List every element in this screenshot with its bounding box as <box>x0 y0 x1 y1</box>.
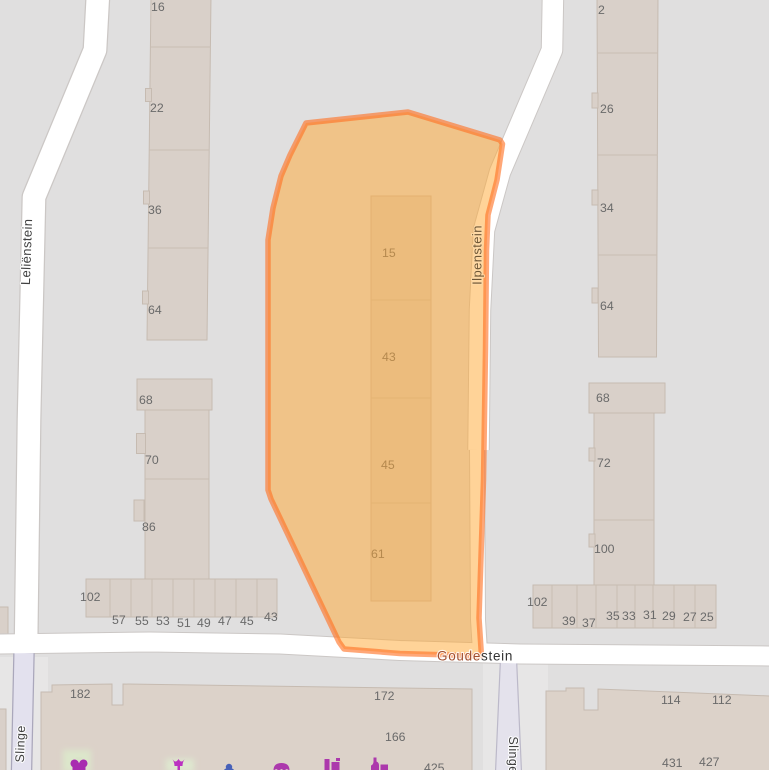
svg-text:Ilpenstein: Ilpenstein <box>470 225 485 285</box>
svg-text:43: 43 <box>264 610 278 624</box>
svg-text:86: 86 <box>142 520 156 534</box>
svg-text:182: 182 <box>70 687 91 701</box>
svg-text:57: 57 <box>112 613 126 627</box>
svg-text:49: 49 <box>197 616 211 630</box>
svg-text:37: 37 <box>582 616 596 630</box>
svg-text:26: 26 <box>600 102 614 116</box>
svg-text:51: 51 <box>177 616 191 630</box>
svg-text:427: 427 <box>699 755 720 769</box>
svg-text:431: 431 <box>662 756 683 770</box>
svg-text:102: 102 <box>527 595 548 609</box>
svg-text:425: 425 <box>424 761 445 770</box>
svg-text:34: 34 <box>600 201 614 215</box>
svg-text:166: 166 <box>385 730 406 744</box>
svg-text:68: 68 <box>596 391 610 405</box>
svg-text:25: 25 <box>700 610 714 624</box>
svg-text:Goudestein: Goudestein <box>437 649 513 664</box>
svg-text:112: 112 <box>712 693 732 707</box>
svg-text:Leliënstein: Leliënstein <box>18 218 35 285</box>
svg-text:39: 39 <box>562 614 576 628</box>
svg-text:72: 72 <box>597 456 611 470</box>
svg-text:102: 102 <box>80 590 101 604</box>
svg-text:33: 33 <box>622 609 636 623</box>
svg-text:45: 45 <box>240 614 254 628</box>
svg-text:31: 31 <box>643 608 657 622</box>
svg-text:100: 100 <box>594 542 615 556</box>
svg-text:55: 55 <box>135 614 149 628</box>
svg-text:29: 29 <box>662 609 676 623</box>
svg-text:36: 36 <box>148 203 162 217</box>
svg-text:114: 114 <box>661 693 681 707</box>
svg-text:Slinge: Slinge <box>13 725 28 763</box>
svg-text:47: 47 <box>218 614 232 628</box>
svg-text:70: 70 <box>145 453 159 467</box>
svg-text:64: 64 <box>148 303 162 317</box>
svg-text:16: 16 <box>151 0 165 14</box>
svg-text:27: 27 <box>683 610 697 624</box>
svg-text:2: 2 <box>598 3 605 17</box>
svg-text:Slinge: Slinge <box>506 736 520 770</box>
svg-text:35: 35 <box>606 609 620 623</box>
svg-text:64: 64 <box>600 299 614 313</box>
svg-text:172: 172 <box>374 689 395 703</box>
svg-text:22: 22 <box>150 101 164 115</box>
svg-text:68: 68 <box>139 393 153 407</box>
svg-text:53: 53 <box>156 614 170 628</box>
